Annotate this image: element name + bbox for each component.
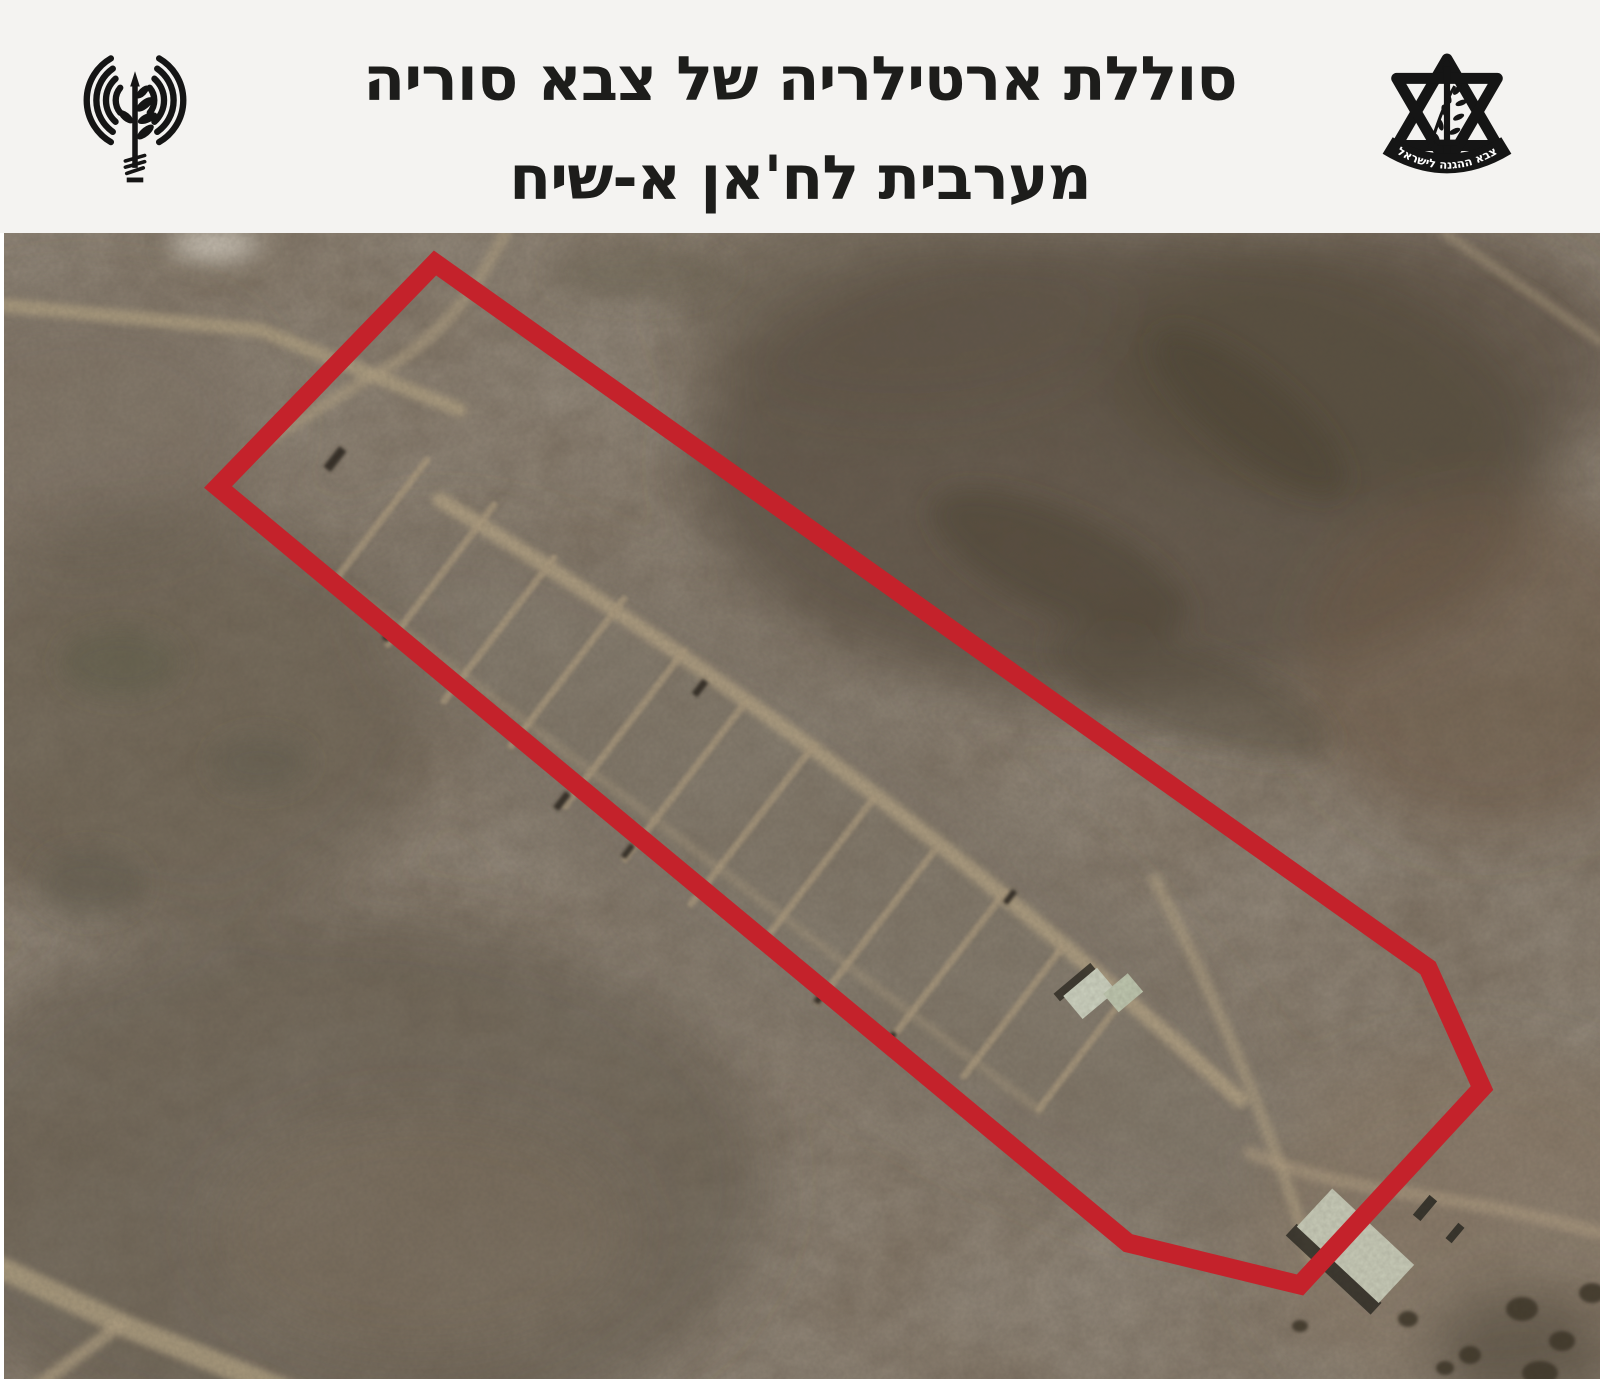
antenna-coil: [125, 155, 144, 173]
photo-bottom-margin: [0, 1379, 1600, 1386]
antenna-olive-branch-icon: [116, 71, 158, 168]
title-line-1: סוללת ארטילריה של צבא סוריה: [230, 30, 1370, 129]
antenna-base: [127, 178, 144, 183]
title-line-2: מערבית לח'אן א-שיח: [230, 129, 1370, 228]
infographic: סוללת ארטילריה של צבא סוריה מערבית לח'אן…: [0, 0, 1600, 1386]
idf-emblem-logo: צבא ההגנה לישראל: [1376, 50, 1518, 179]
header-band: סוללת ארטילריה של צבא סוריה מערבית לח'אן…: [0, 0, 1600, 233]
idf-spokesperson-logo: [66, 45, 204, 190]
satellite-image: [0, 233, 1600, 1386]
page-title: סוללת ארטילריה של צבא סוריה מערבית לח'אן…: [230, 30, 1370, 228]
photo-left-margin: [0, 233, 4, 1386]
